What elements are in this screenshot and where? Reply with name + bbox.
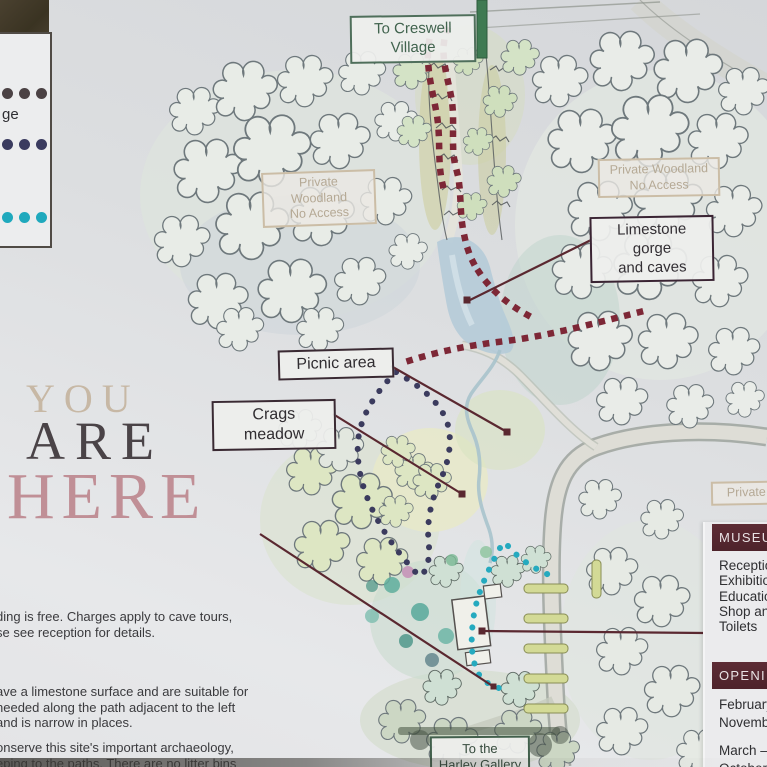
museum-panel-header: MUSEUM (712, 524, 767, 551)
legend-dot (36, 212, 47, 223)
label-private-woodland-left: Private Woodland No Access (261, 169, 377, 228)
map-sign-photo: ge To Creswell Village Private Woodland … (0, 0, 767, 767)
museum-item: Exhibition (719, 573, 767, 588)
info-line: se see reception for details. (0, 625, 232, 641)
label-line: To the (436, 741, 524, 758)
museum-item: Toilets (719, 619, 767, 634)
legend-dot (36, 88, 47, 99)
label-line: No Access (270, 205, 368, 224)
label-line: Limestone gorge (600, 220, 705, 259)
opening-panel-lines: February – November March – S October – (719, 696, 767, 767)
legend-dot (19, 139, 30, 150)
label-private-woodland-right: Private Woodland No Access (598, 157, 721, 198)
sign-frame-corner (0, 0, 49, 33)
legend-partial-label: ge (2, 106, 19, 123)
opening-panel-header: OPENING (712, 662, 767, 689)
label-private-partial: Private Lo (711, 480, 767, 505)
label-picnic-area: Picnic area (278, 347, 395, 380)
village-signpost (477, 0, 487, 58)
info-line: ding is free. Charges apply to cave tour… (0, 609, 232, 625)
museum-item: Education (719, 589, 767, 604)
legend-dot (2, 139, 13, 150)
opening-line: November (719, 714, 767, 732)
museum-opening-panel: MUSEUM Reception Exhibition Education Sh… (703, 522, 767, 767)
info-line: onserve this site's important archaeolog… (0, 740, 236, 756)
legend-row-waterside-trail (0, 212, 47, 223)
legend-row-meadow-trail (0, 139, 47, 150)
label-crags-meadow: Crags meadow (212, 399, 337, 451)
info-text-charges: ding is free. Charges apply to cave tour… (0, 609, 232, 640)
museum-item: Reception (719, 558, 767, 573)
legend-dot (19, 88, 30, 99)
label-line: Private Woodland (606, 161, 712, 178)
trail-legend: ge (0, 32, 52, 248)
legend-row-gorge-trail (0, 88, 47, 99)
info-text-paths: ave a limestone surface and are suitable… (0, 684, 248, 731)
museum-panel-items: Reception Exhibition Education Shop and … (719, 558, 767, 634)
label-line: Private Woodland (269, 173, 368, 208)
opening-line: February – (719, 696, 767, 714)
info-line: and is narrow in places. (0, 715, 248, 731)
label-line: No Access (606, 177, 712, 194)
info-line: needed along the path adjacent to the le… (0, 700, 248, 716)
photo-shadow (0, 758, 767, 767)
legend-dot (2, 212, 13, 223)
legend-dot (19, 212, 30, 223)
museum-item: Shop and (719, 604, 767, 619)
legend-dot (36, 139, 47, 150)
label-line: and caves (600, 258, 704, 279)
label-to-creswell-village: To Creswell Village (350, 14, 477, 63)
info-line: ave a limestone surface and are suitable… (0, 684, 248, 700)
you-are-here-line3: HERE (7, 464, 207, 530)
label-limestone-gorge-and-caves: Limestone gorge and caves (589, 215, 714, 283)
legend-dot (2, 88, 13, 99)
